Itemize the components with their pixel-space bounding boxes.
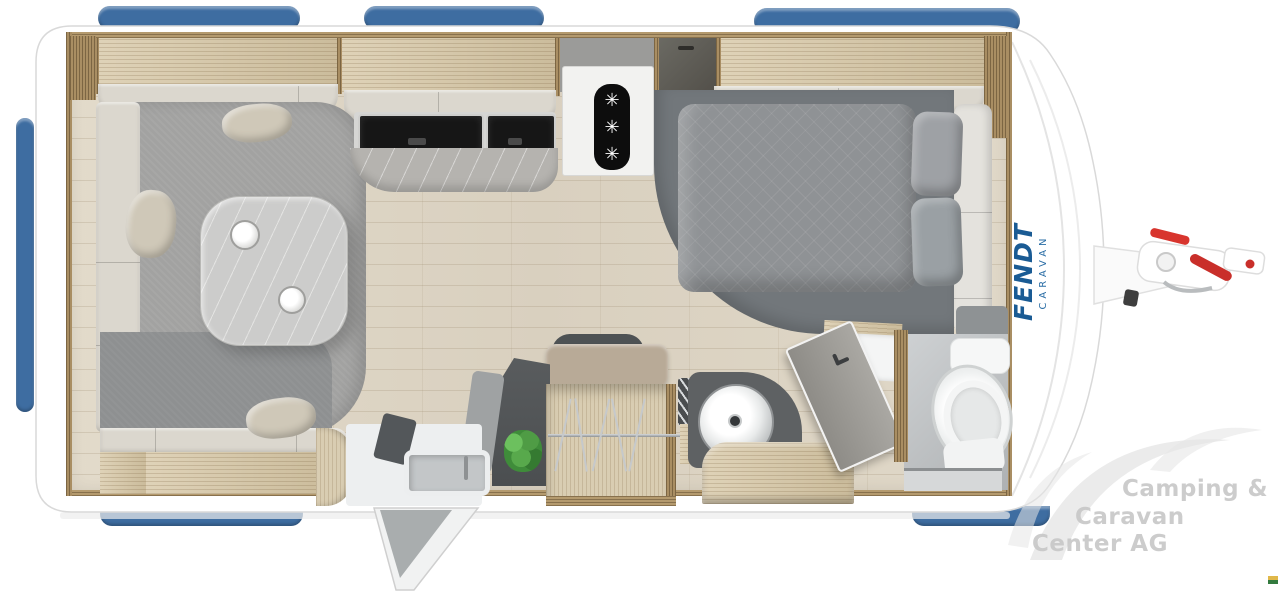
watermark-line-2: Caravan — [1075, 504, 1185, 530]
corner-flag-mark — [1268, 576, 1278, 584]
corner-flag-bottom-stripe — [1268, 580, 1278, 584]
caravan-floorplan-image: ✳ ✳ ✳ — [0, 0, 1280, 593]
watermark-line-3: Center AG — [1032, 531, 1168, 557]
watermark-line-1: Camping & — [1122, 476, 1268, 502]
